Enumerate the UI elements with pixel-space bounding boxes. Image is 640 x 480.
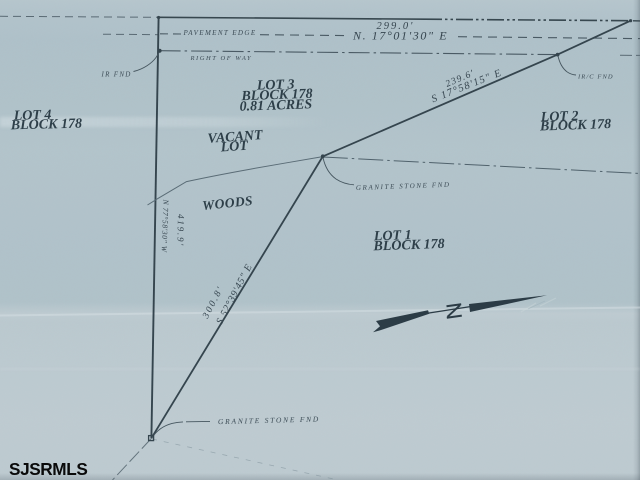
svg-text:BLOCK 178: BLOCK 178: [10, 117, 83, 134]
svg-text:N 77°58'30" W: N 77°58'30" W: [160, 198, 171, 252]
svg-text:BLOCK 178: BLOCK 178: [372, 237, 445, 255]
svg-text:IR FND: IR FND: [101, 71, 132, 79]
svg-text:RIGHT OF WAY: RIGHT OF WAY: [190, 55, 253, 62]
svg-text:PAVEMENT EDGE: PAVEMENT EDGE: [183, 29, 257, 37]
svg-text:IR/C FND: IR/C FND: [577, 74, 614, 81]
svg-text:N. 17°01'30" E: N. 17°01'30" E: [352, 29, 448, 43]
svg-text:419.9': 419.9': [175, 214, 186, 247]
svg-text:BLOCK 178: BLOCK 178: [539, 117, 612, 135]
svg-text:0.81 ACRES: 0.81 ACRES: [239, 97, 312, 115]
svg-text:LOT: LOT: [219, 139, 250, 156]
